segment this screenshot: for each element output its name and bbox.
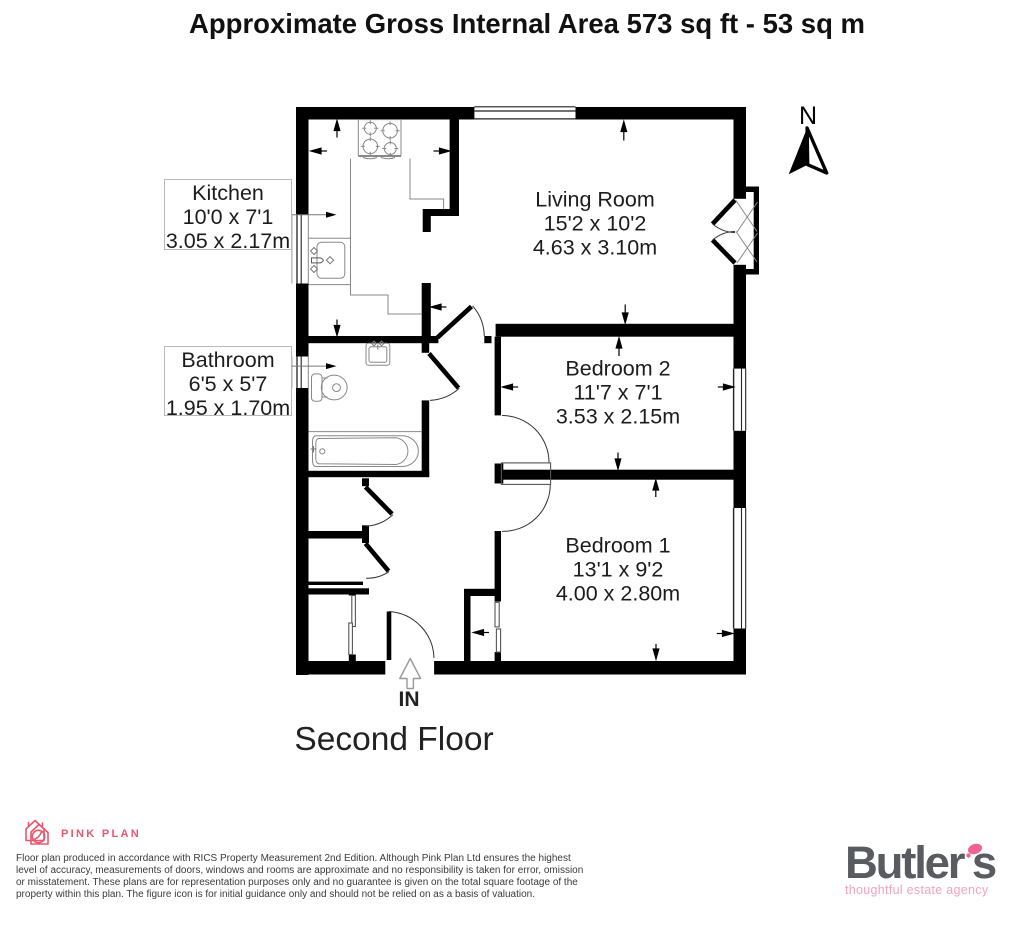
svg-text:N: N [799, 102, 817, 130]
